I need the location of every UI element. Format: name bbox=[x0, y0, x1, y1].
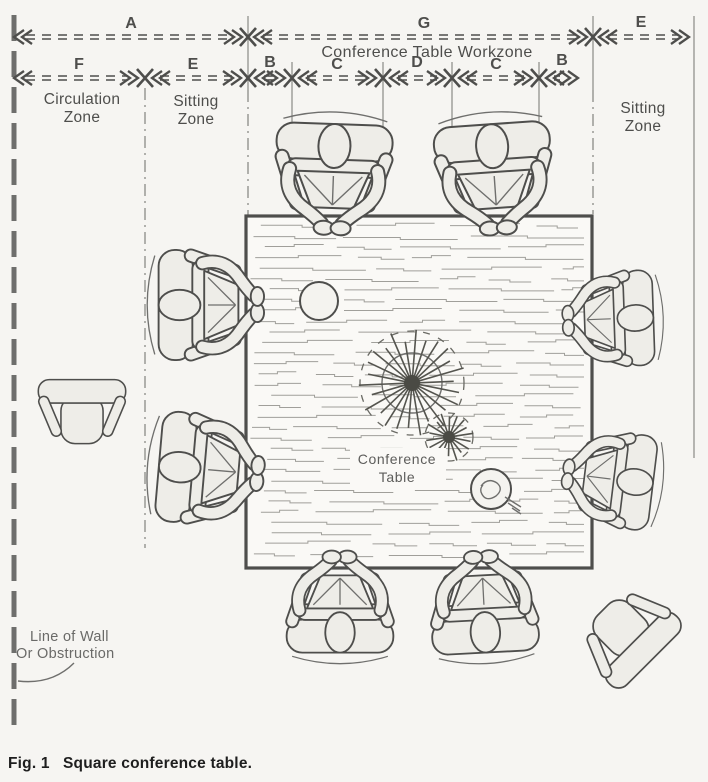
dim-label-B-right: B bbox=[556, 52, 568, 69]
svg-text:Zone: Zone bbox=[64, 109, 101, 126]
dim-label-F: F bbox=[74, 56, 84, 73]
figure-caption: Fig. 1 Square conference table. bbox=[8, 755, 252, 772]
plate bbox=[300, 282, 338, 320]
empty-chair-left bbox=[38, 380, 125, 444]
dimension-row-top: A G E Conference Table Workzone bbox=[14, 14, 689, 61]
svg-text:Table: Table bbox=[379, 469, 415, 485]
wall-label-line2: Or Obstruction bbox=[16, 646, 114, 662]
svg-text:Zone: Zone bbox=[625, 118, 662, 135]
figure-canvas: A G E Conference Table Workzone F E B C … bbox=[0, 0, 708, 782]
dim-label-G: G bbox=[418, 15, 430, 32]
caption-fig-number: Fig. 1 bbox=[8, 755, 50, 772]
table-label: Conference Table bbox=[350, 448, 446, 486]
svg-text:Zone: Zone bbox=[178, 111, 215, 128]
dim-label-C-left: C bbox=[331, 56, 343, 73]
dim-label-E-top: E bbox=[636, 14, 647, 31]
svg-text:Conference: Conference bbox=[358, 451, 436, 467]
caption-text: Square conference table. bbox=[63, 755, 252, 772]
sitting-zone-left-label: Sitting bbox=[173, 93, 218, 110]
dim-label-A: A bbox=[125, 15, 137, 32]
wall-annotation: Line of Wall Or Obstruction bbox=[16, 629, 114, 682]
wall-leader-line bbox=[18, 663, 74, 682]
dim-label-E: E bbox=[188, 56, 199, 73]
wall-label-line1: Line of Wall bbox=[30, 629, 109, 645]
dim-label-B-left: B bbox=[264, 54, 276, 71]
sitting-zone-right-label: Sitting bbox=[620, 100, 665, 117]
circulation-zone-label: Circulation bbox=[44, 91, 121, 108]
dim-label-C-right: C bbox=[490, 56, 502, 73]
dimension-row-bottom: F E B C D C B bbox=[14, 52, 578, 87]
empty-chair-corner bbox=[569, 576, 686, 693]
square-conference-table-diagram: A G E Conference Table Workzone F E B C … bbox=[0, 0, 708, 782]
dim-label-D: D bbox=[411, 54, 423, 71]
